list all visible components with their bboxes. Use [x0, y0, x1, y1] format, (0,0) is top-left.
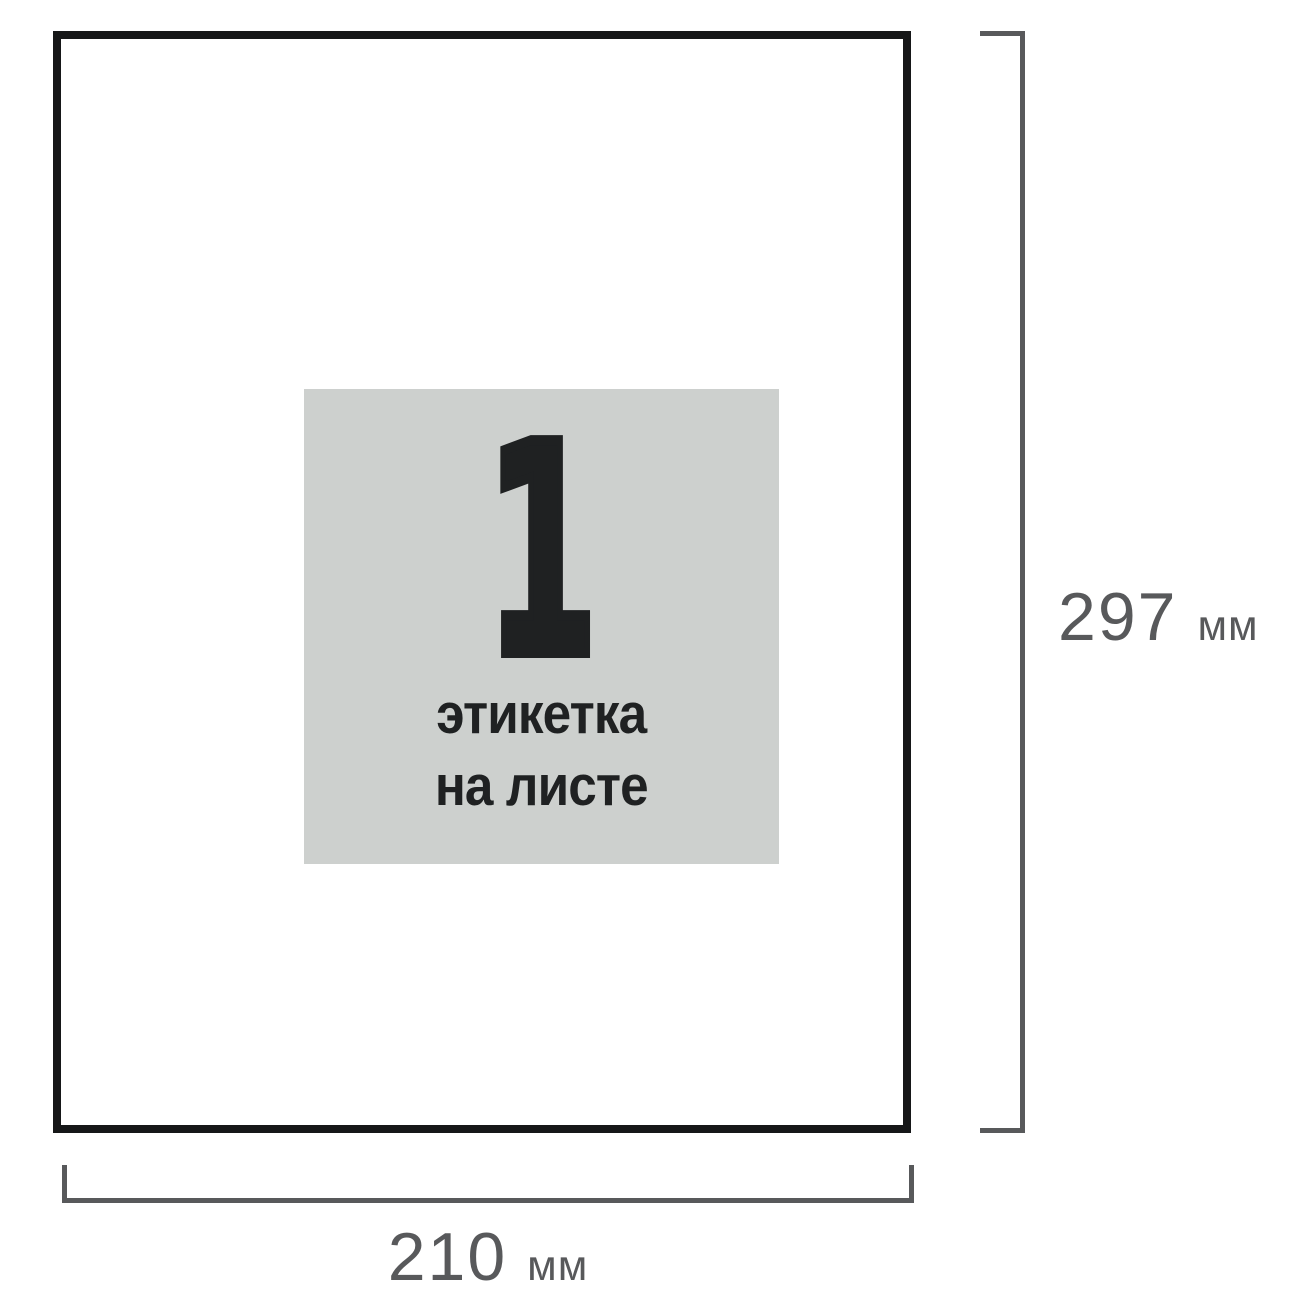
width-dimension-value: 210: [388, 1219, 507, 1295]
labels-per-sheet-count: 1: [485, 436, 599, 670]
height-dimension-bracket: [980, 31, 1025, 1133]
label-caption-line2: на листе: [435, 751, 648, 823]
label-caption-line1: этикетка: [435, 679, 648, 751]
height-dimension-unit: мм: [1197, 602, 1258, 650]
width-dimension-label: 210мм: [62, 1218, 914, 1296]
height-dimension-value: 297: [1058, 579, 1177, 655]
label-caption: этикетка на листе: [435, 679, 648, 823]
sheet-outline: 1 этикетка на листе: [53, 31, 911, 1133]
label-area: 1 этикетка на листе: [304, 389, 779, 864]
height-dimension-label: 297мм: [1058, 578, 1259, 656]
label-sheet-diagram: 1 этикетка на листе 297мм 210мм: [0, 0, 1300, 1300]
width-dimension-bracket: [62, 1165, 914, 1203]
width-dimension-unit: мм: [527, 1242, 588, 1290]
